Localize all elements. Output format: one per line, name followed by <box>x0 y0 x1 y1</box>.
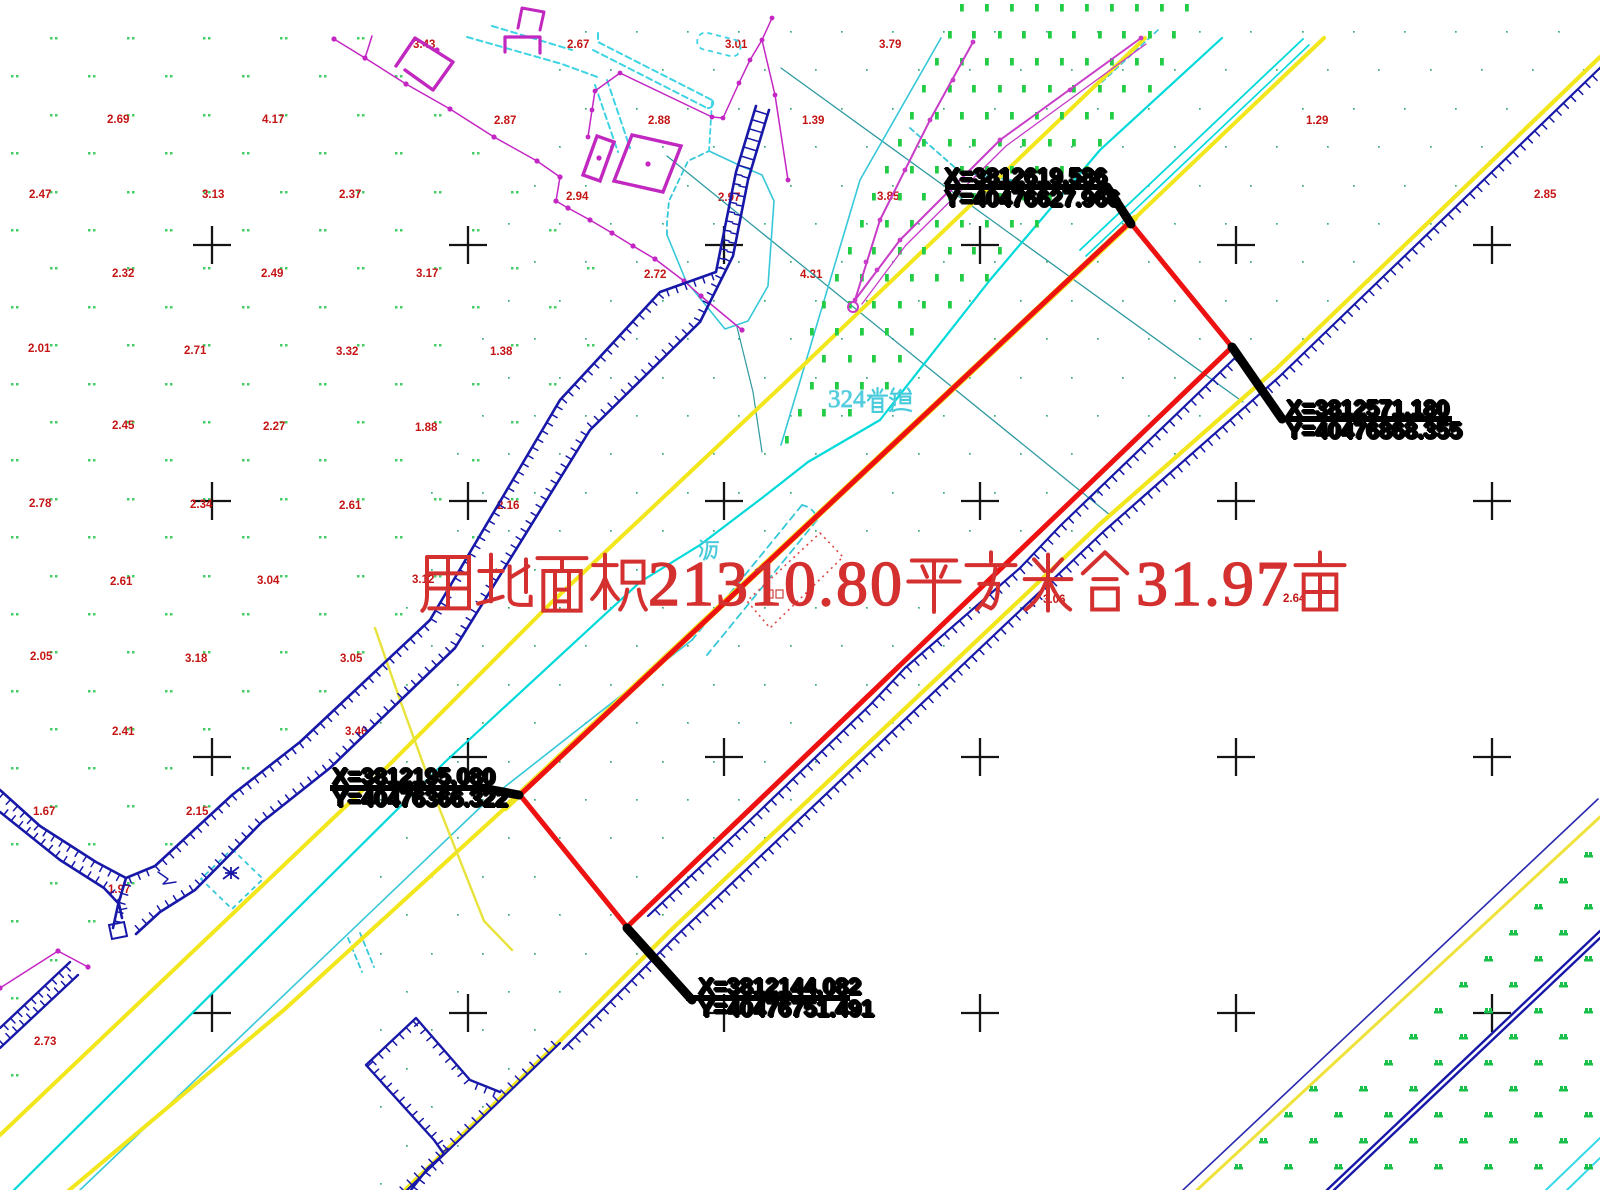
svg-text:3.05: 3.05 <box>340 653 363 665</box>
svg-text:2.72: 2.72 <box>644 269 666 281</box>
svg-text:1.39: 1.39 <box>802 115 824 127</box>
svg-text:2.15: 2.15 <box>186 806 209 818</box>
svg-text:Y=40476751.491: Y=40476751.491 <box>698 995 874 1021</box>
svg-text:2.37: 2.37 <box>339 189 361 201</box>
svg-text:2.69: 2.69 <box>107 114 129 126</box>
svg-text:3.13: 3.13 <box>202 189 224 201</box>
svg-text:2.27: 2.27 <box>263 421 285 433</box>
svg-text:2.01: 2.01 <box>28 343 51 355</box>
svg-text:2.45: 2.45 <box>112 420 135 432</box>
svg-text:2.71: 2.71 <box>184 345 207 357</box>
svg-text:Y=40476627.966: Y=40476627.966 <box>944 185 1120 211</box>
svg-text:2.88: 2.88 <box>648 115 671 127</box>
svg-text:Y=40476366.322: Y=40476366.322 <box>332 785 508 811</box>
svg-text:3.17: 3.17 <box>416 268 438 280</box>
svg-text:2.34: 2.34 <box>190 499 213 511</box>
svg-text:2.47: 2.47 <box>29 189 51 201</box>
svg-text:1.88: 1.88 <box>415 422 438 434</box>
svg-text:2.61: 2.61 <box>339 500 362 512</box>
svg-text:2.85: 2.85 <box>1534 189 1557 201</box>
svg-text:1.67: 1.67 <box>33 806 55 818</box>
svg-text:31.97: 31.97 <box>1136 548 1290 619</box>
svg-text:2.73: 2.73 <box>34 1036 56 1048</box>
svg-text:2.49: 2.49 <box>261 268 283 280</box>
svg-text:2.94: 2.94 <box>566 191 589 203</box>
svg-text:3.04: 3.04 <box>257 575 280 587</box>
svg-text:3.79: 3.79 <box>879 39 901 51</box>
svg-text:2.61: 2.61 <box>110 576 133 588</box>
svg-text:21310.80: 21310.80 <box>648 548 904 619</box>
svg-text:3.18: 3.18 <box>185 653 208 665</box>
svg-text:2.87: 2.87 <box>494 115 516 127</box>
svg-text:2.32: 2.32 <box>112 268 134 280</box>
svg-text:2.41: 2.41 <box>112 726 135 738</box>
svg-text:4.17: 4.17 <box>262 114 284 126</box>
svg-text:3.12: 3.12 <box>412 574 434 586</box>
svg-text:1.38: 1.38 <box>490 346 513 358</box>
svg-text:2.78: 2.78 <box>29 498 52 510</box>
svg-text:2.05: 2.05 <box>30 651 53 663</box>
svg-text:3.32: 3.32 <box>336 346 358 358</box>
svg-text:1.29: 1.29 <box>1306 115 1328 127</box>
svg-text:Y=40476868.355: Y=40476868.355 <box>1286 417 1462 443</box>
svg-text:324: 324 <box>828 386 866 413</box>
